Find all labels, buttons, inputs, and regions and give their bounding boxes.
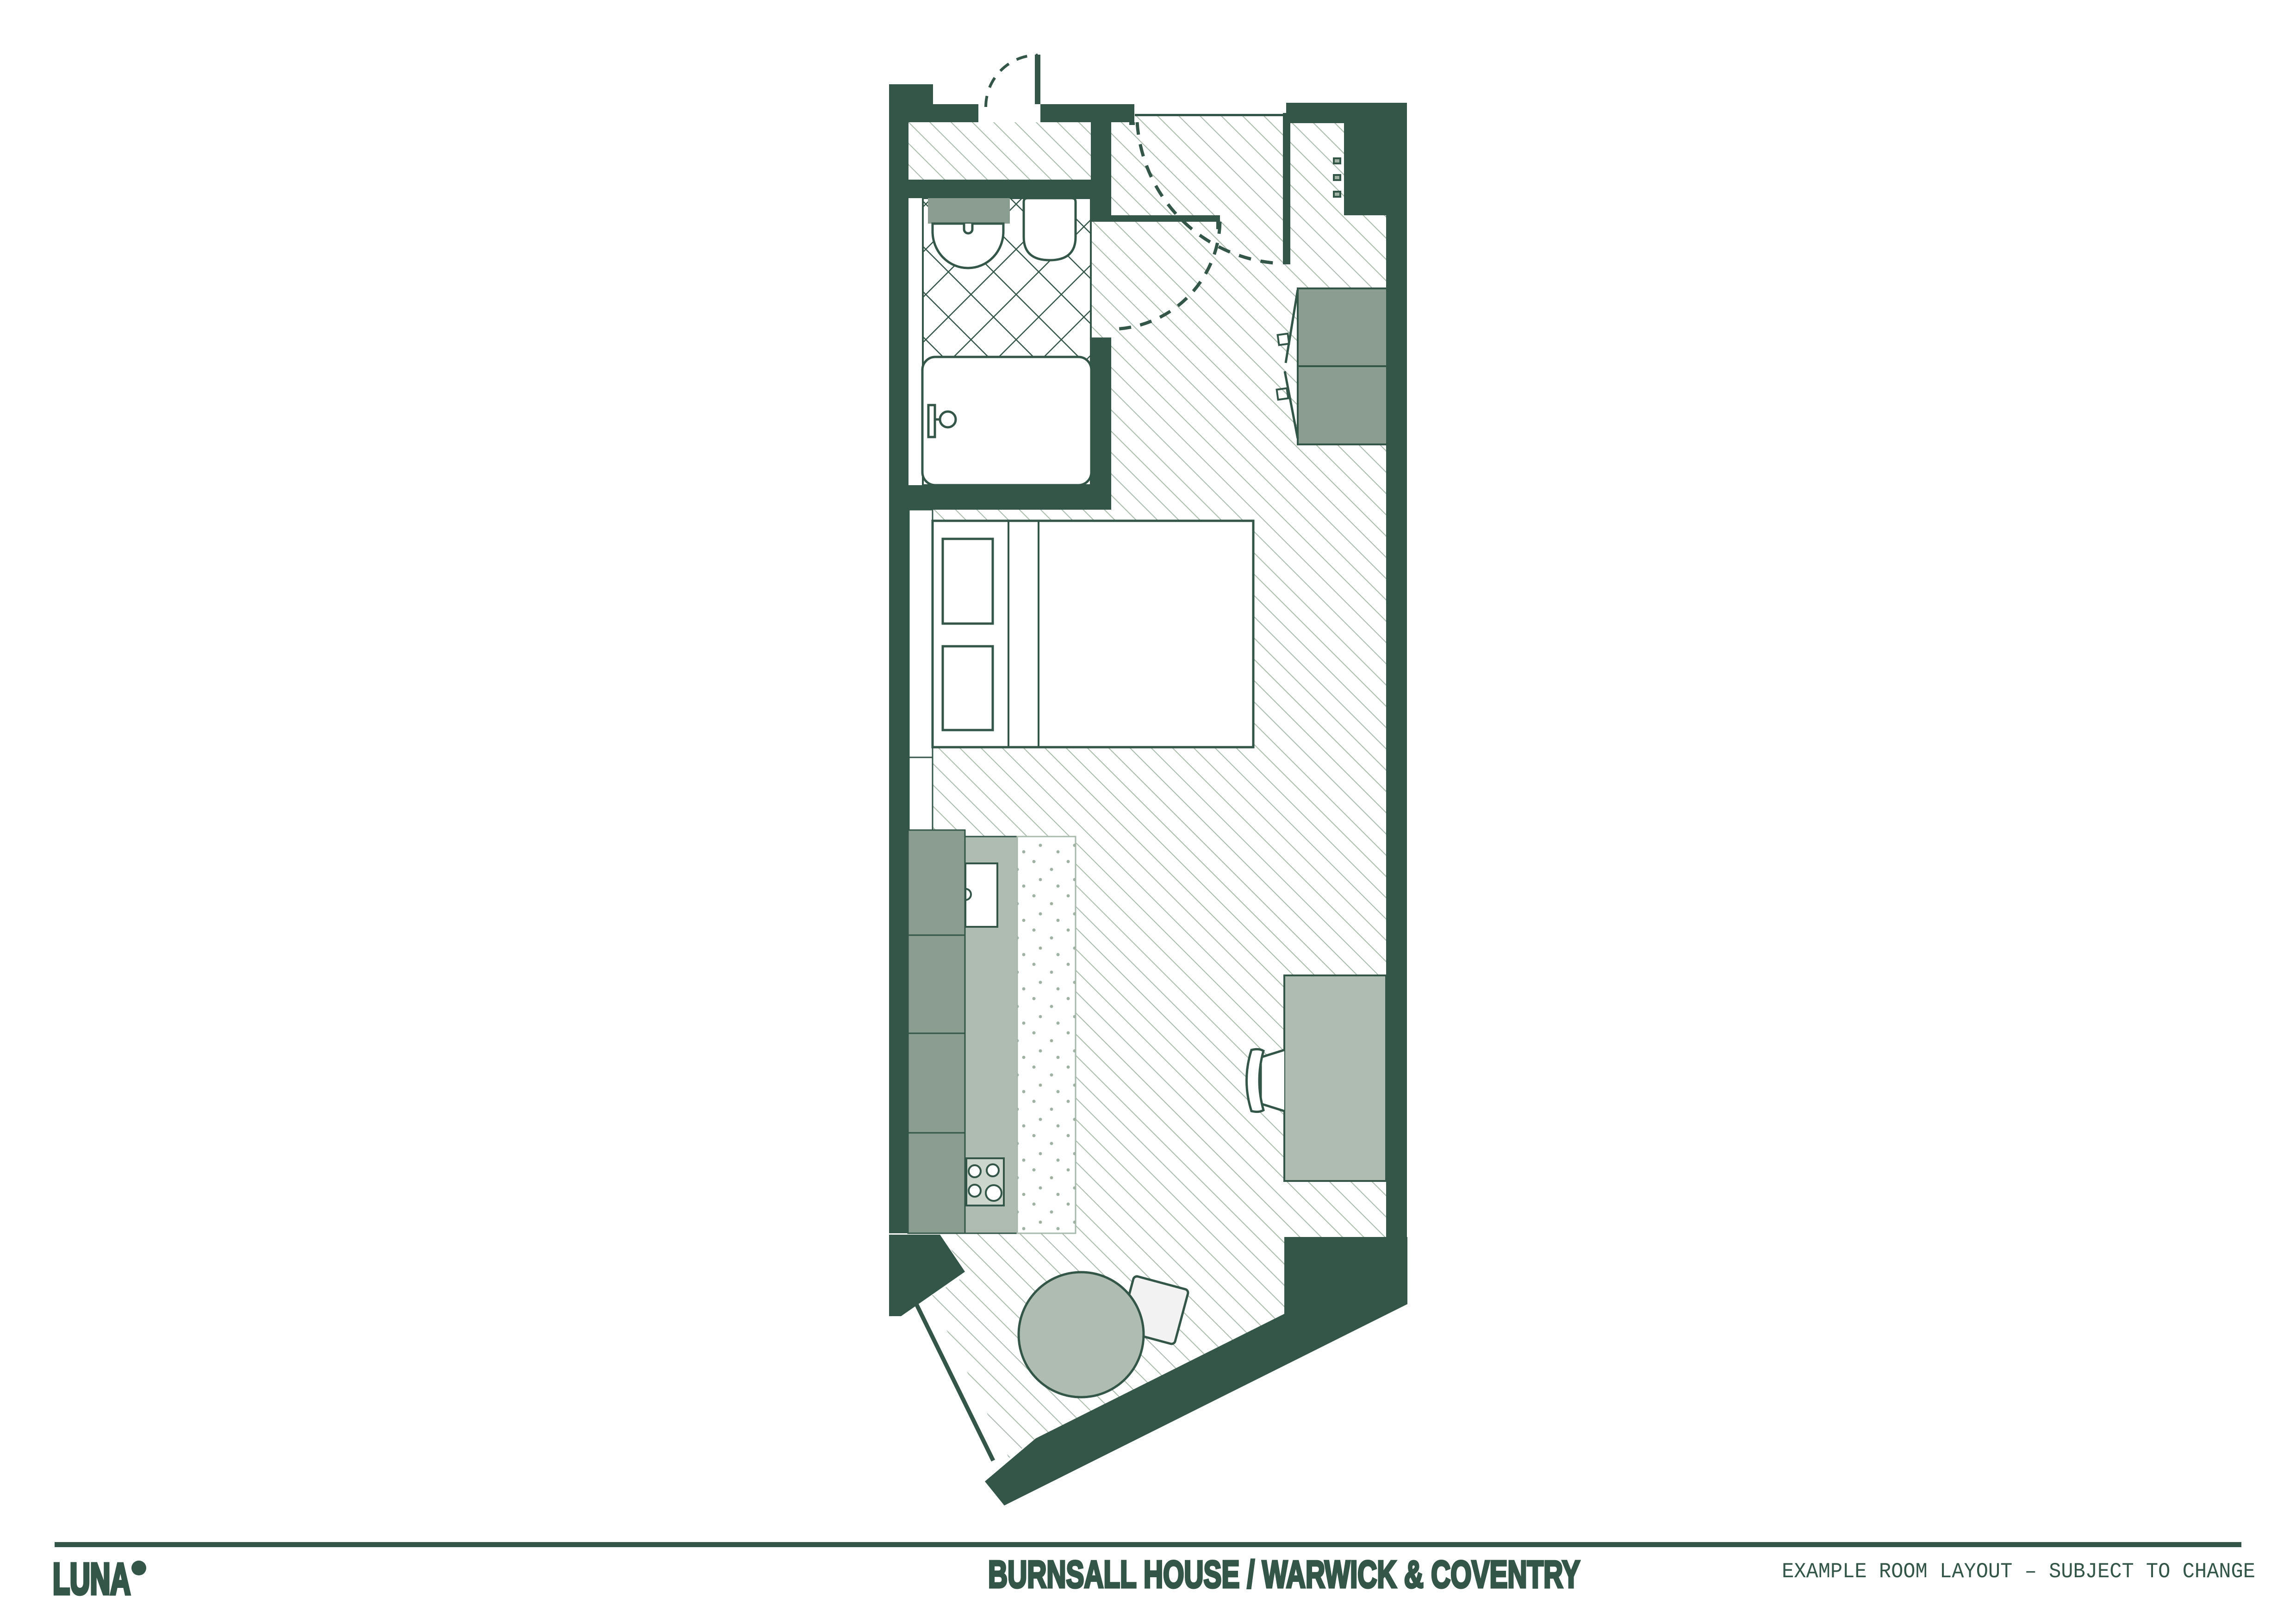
svg-text:LUNA: LUNA: [53, 1555, 131, 1604]
svg-text:EXAMPLE ROOM LAYOUT – SUBJECT: EXAMPLE ROOM LAYOUT – SUBJECT TO CHANGE: [1782, 1560, 2255, 1584]
svg-text:BURNSALL HOUSE / WARWICK & COV: BURNSALL HOUSE / WARWICK & COVENTRY: [988, 1553, 1580, 1596]
